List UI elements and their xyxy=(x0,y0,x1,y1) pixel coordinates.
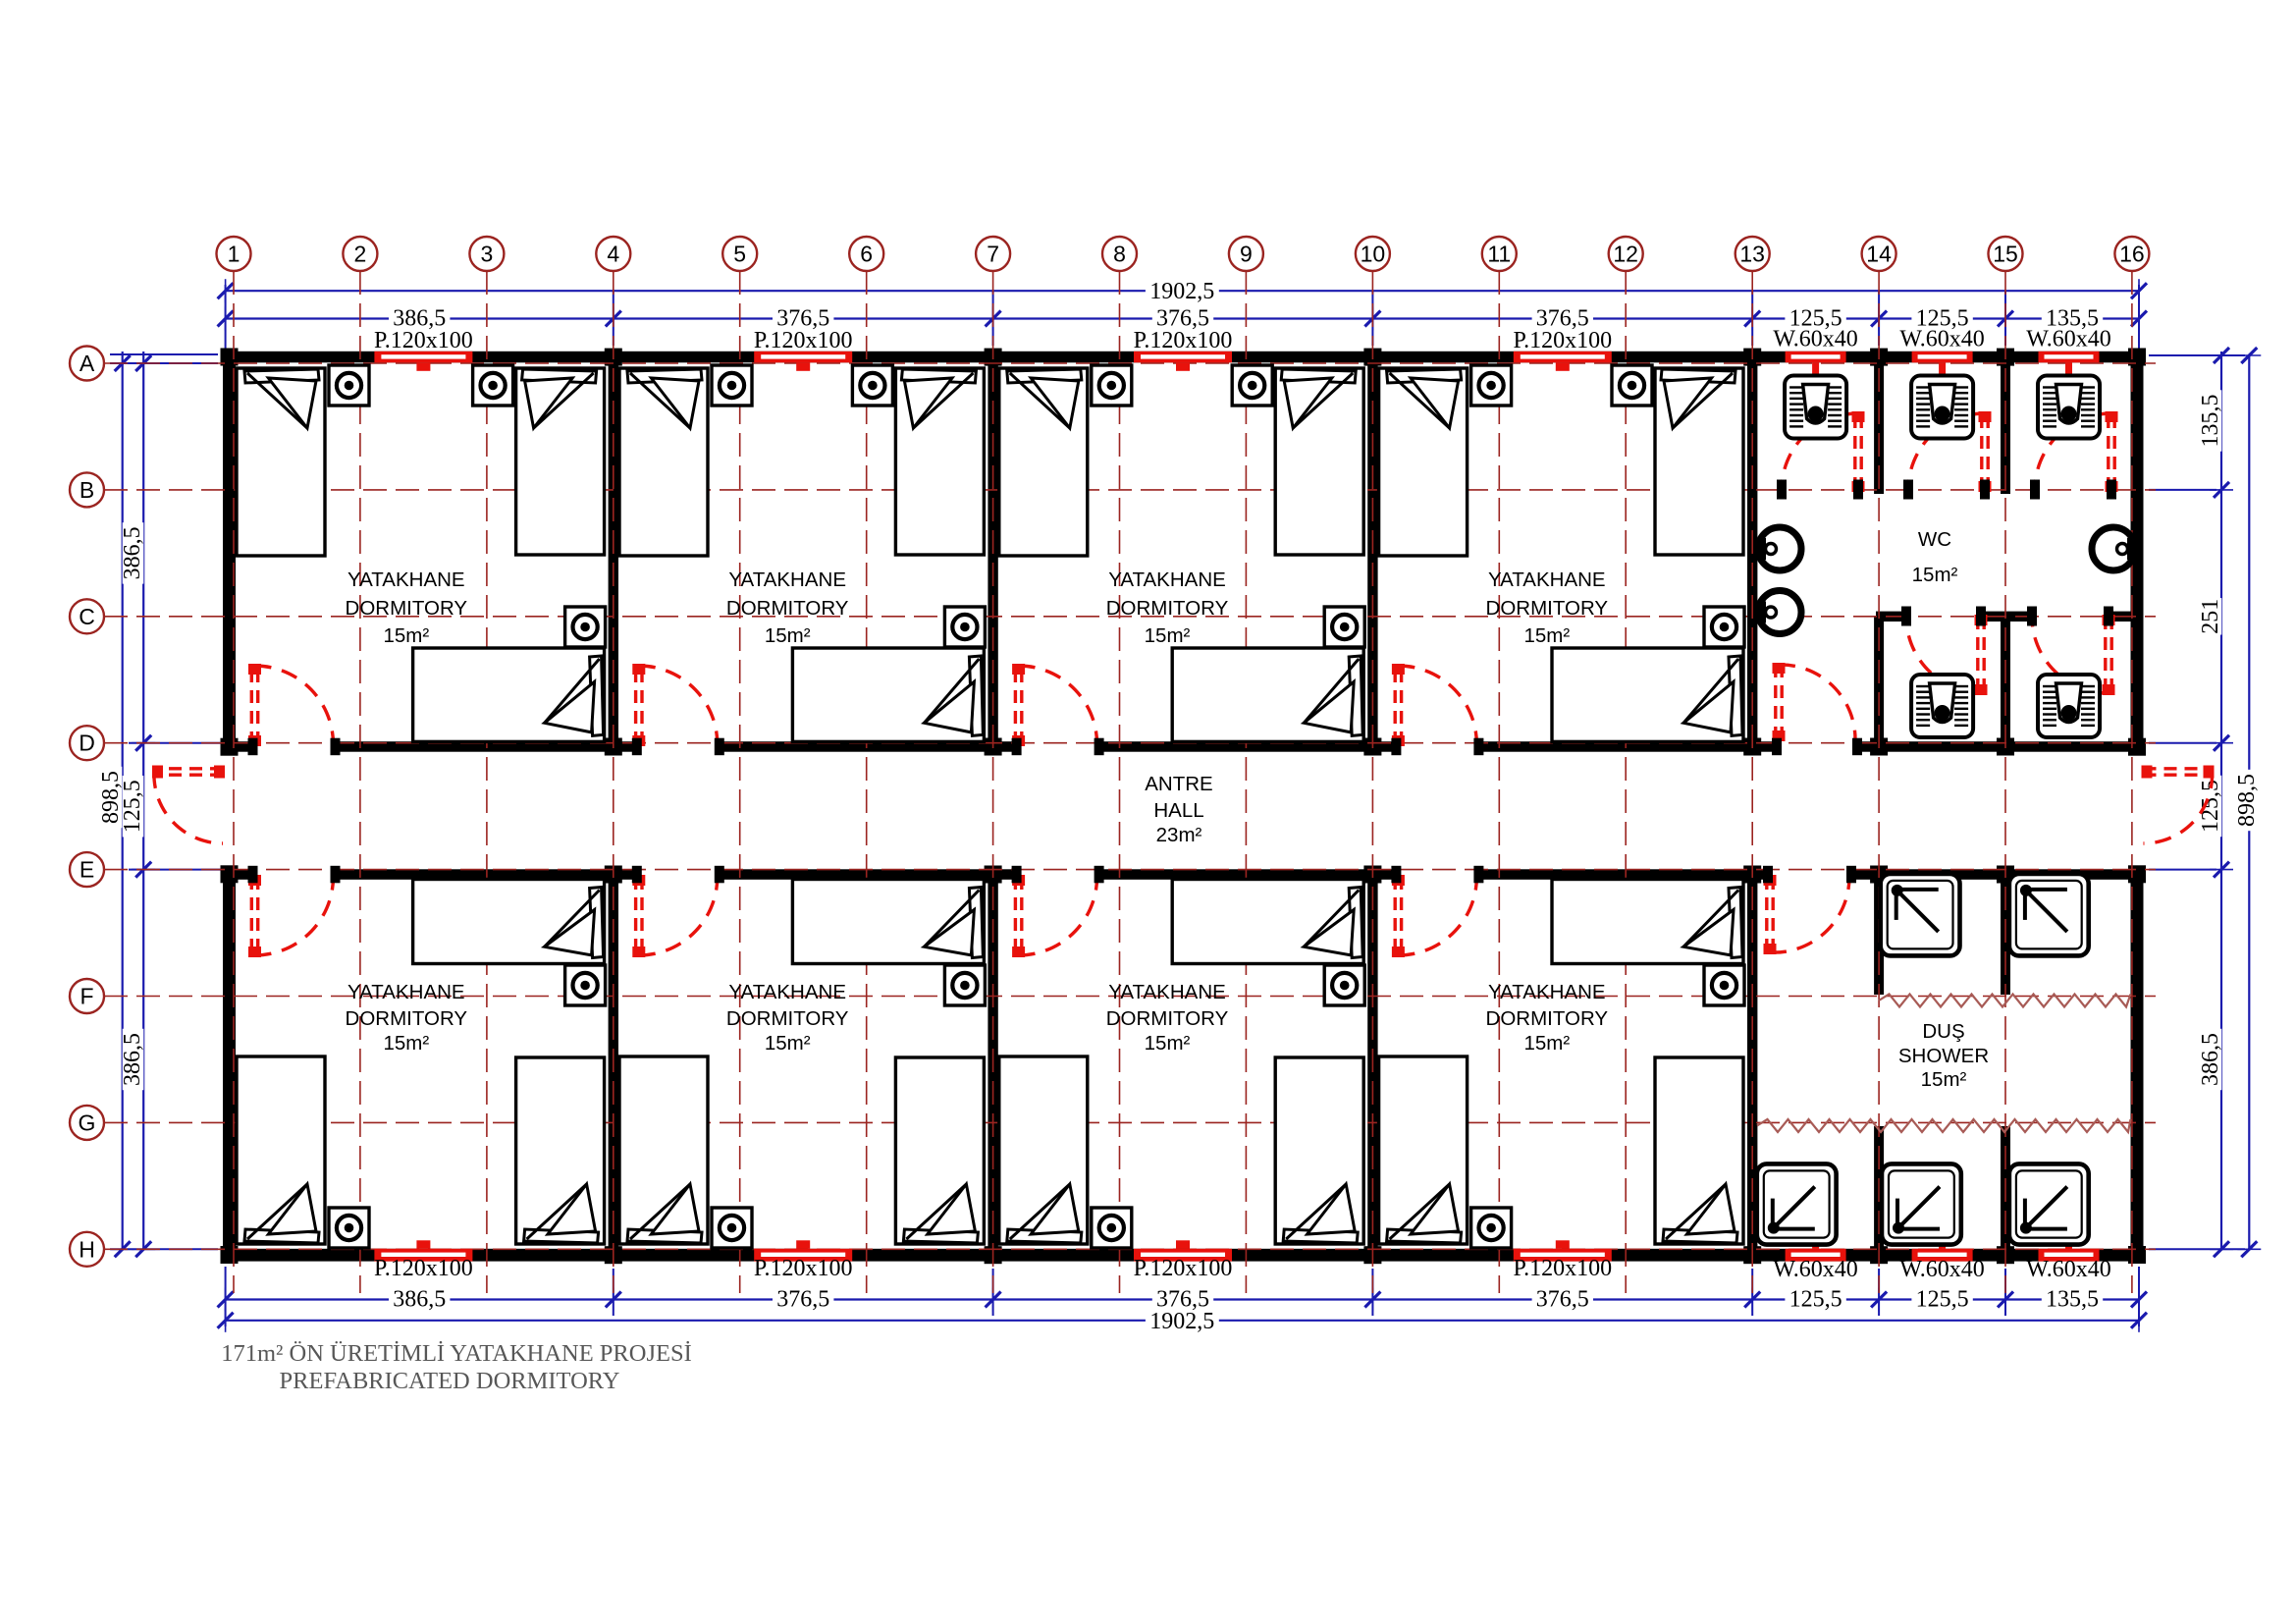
svg-text:386,5: 386,5 xyxy=(2198,1033,2223,1086)
svg-text:15m²: 15m² xyxy=(765,624,811,647)
svg-text:15m²: 15m² xyxy=(765,1032,811,1055)
svg-text:8: 8 xyxy=(1113,242,1126,267)
svg-text:386,5: 386,5 xyxy=(393,1287,446,1313)
svg-text:YATAKHANE: YATAKHANE xyxy=(1488,981,1606,1003)
svg-text:386,5: 386,5 xyxy=(120,1033,145,1086)
svg-text:11: 11 xyxy=(1487,242,1511,267)
svg-text:P.120x100: P.120x100 xyxy=(1134,328,1233,353)
svg-text:9: 9 xyxy=(1240,242,1253,267)
svg-text:YATAKHANE: YATAKHANE xyxy=(1108,568,1226,591)
svg-text:376,5: 376,5 xyxy=(776,1287,829,1313)
svg-text:P.120x100: P.120x100 xyxy=(374,1256,473,1281)
svg-text:P.120x100: P.120x100 xyxy=(754,1256,853,1281)
svg-text:P.120x100: P.120x100 xyxy=(1134,1256,1233,1281)
svg-text:171m² ÖN ÜRETİMLİ YATAKHANE PR: 171m² ÖN ÜRETİMLİ YATAKHANE PROJESİ xyxy=(221,1340,692,1367)
svg-text:15m²: 15m² xyxy=(1523,1032,1570,1055)
svg-text:P.120x100: P.120x100 xyxy=(374,328,473,353)
svg-text:DORMITORY: DORMITORY xyxy=(346,1007,468,1030)
svg-text:YATAKHANE: YATAKHANE xyxy=(1488,568,1606,591)
svg-text:D: D xyxy=(79,730,95,756)
svg-text:125,5: 125,5 xyxy=(1789,1287,1842,1313)
svg-text:DORMITORY: DORMITORY xyxy=(1486,1007,1609,1030)
svg-text:125,5: 125,5 xyxy=(1916,1287,1969,1313)
svg-text:251: 251 xyxy=(2198,599,2223,634)
svg-text:DORMITORY: DORMITORY xyxy=(726,597,849,620)
svg-text:C: C xyxy=(79,604,95,629)
svg-text:15m²: 15m² xyxy=(1523,624,1570,647)
svg-text:E: E xyxy=(80,857,94,883)
svg-text:15m²: 15m² xyxy=(1921,1068,1967,1091)
svg-text:15m²: 15m² xyxy=(1145,1032,1191,1055)
svg-text:4: 4 xyxy=(607,242,619,267)
svg-text:P.120x100: P.120x100 xyxy=(754,328,853,353)
svg-text:ANTRE: ANTRE xyxy=(1145,773,1212,795)
svg-text:1902,5: 1902,5 xyxy=(1149,279,1214,304)
svg-text:W.60x40: W.60x40 xyxy=(1899,327,1984,352)
svg-text:W.60x40: W.60x40 xyxy=(1899,1257,1984,1282)
svg-text:W.60x40: W.60x40 xyxy=(1773,327,1857,352)
svg-text:F: F xyxy=(80,984,93,1009)
svg-text:YATAKHANE: YATAKHANE xyxy=(1108,981,1226,1003)
svg-text:G: G xyxy=(79,1109,96,1135)
svg-text:15m²: 15m² xyxy=(383,1032,429,1055)
svg-text:DORMITORY: DORMITORY xyxy=(346,597,468,620)
svg-text:YATAKHANE: YATAKHANE xyxy=(347,568,465,591)
svg-text:3: 3 xyxy=(481,242,494,267)
svg-text:YATAKHANE: YATAKHANE xyxy=(728,568,846,591)
svg-text:13: 13 xyxy=(1739,242,1765,267)
svg-text:1: 1 xyxy=(228,242,240,267)
svg-text:6: 6 xyxy=(860,242,873,267)
svg-text:376,5: 376,5 xyxy=(1156,1287,1209,1313)
svg-text:WC: WC xyxy=(1918,528,1951,551)
svg-text:DORMITORY: DORMITORY xyxy=(1106,1007,1229,1030)
svg-text:H: H xyxy=(79,1236,95,1262)
svg-text:W.60x40: W.60x40 xyxy=(1773,1257,1857,1282)
svg-text:15: 15 xyxy=(1993,242,2018,267)
svg-text:B: B xyxy=(80,477,94,503)
svg-text:YATAKHANE: YATAKHANE xyxy=(728,981,846,1003)
svg-text:DORMITORY: DORMITORY xyxy=(1486,597,1609,620)
svg-text:YATAKHANE: YATAKHANE xyxy=(347,981,465,1003)
svg-text:P.120x100: P.120x100 xyxy=(1513,1256,1612,1281)
svg-text:23m²: 23m² xyxy=(1156,824,1202,846)
svg-text:376,5: 376,5 xyxy=(1536,1287,1589,1313)
svg-text:1902,5: 1902,5 xyxy=(1149,1309,1214,1334)
svg-text:DUŞ: DUŞ xyxy=(1922,1020,1964,1043)
svg-text:DORMITORY: DORMITORY xyxy=(1106,597,1229,620)
svg-text:16: 16 xyxy=(2119,242,2145,267)
svg-text:125,5: 125,5 xyxy=(120,780,145,833)
svg-text:W.60x40: W.60x40 xyxy=(2026,327,2110,352)
svg-text:7: 7 xyxy=(987,242,999,267)
svg-text:2: 2 xyxy=(354,242,367,267)
svg-text:15m²: 15m² xyxy=(383,624,429,647)
svg-text:A: A xyxy=(80,351,95,376)
svg-text:135,5: 135,5 xyxy=(2046,1287,2099,1313)
svg-text:P.120x100: P.120x100 xyxy=(1513,328,1612,353)
svg-text:10: 10 xyxy=(1361,242,1386,267)
svg-text:15m²: 15m² xyxy=(1912,564,1958,586)
svg-text:SHOWER: SHOWER xyxy=(1898,1045,1989,1067)
svg-text:12: 12 xyxy=(1613,242,1638,267)
svg-text:14: 14 xyxy=(1866,242,1892,267)
svg-text:135,5: 135,5 xyxy=(2198,395,2223,448)
svg-text:HALL: HALL xyxy=(1153,799,1203,822)
svg-text:DORMITORY: DORMITORY xyxy=(726,1007,849,1030)
svg-text:15m²: 15m² xyxy=(1145,624,1191,647)
svg-text:386,5: 386,5 xyxy=(120,526,145,579)
svg-text:898,5: 898,5 xyxy=(2234,774,2260,827)
svg-text:W.60x40: W.60x40 xyxy=(2026,1257,2110,1282)
svg-text:5: 5 xyxy=(733,242,746,267)
svg-text:PREFABRICATED DORMITORY: PREFABRICATED DORMITORY xyxy=(280,1368,620,1394)
